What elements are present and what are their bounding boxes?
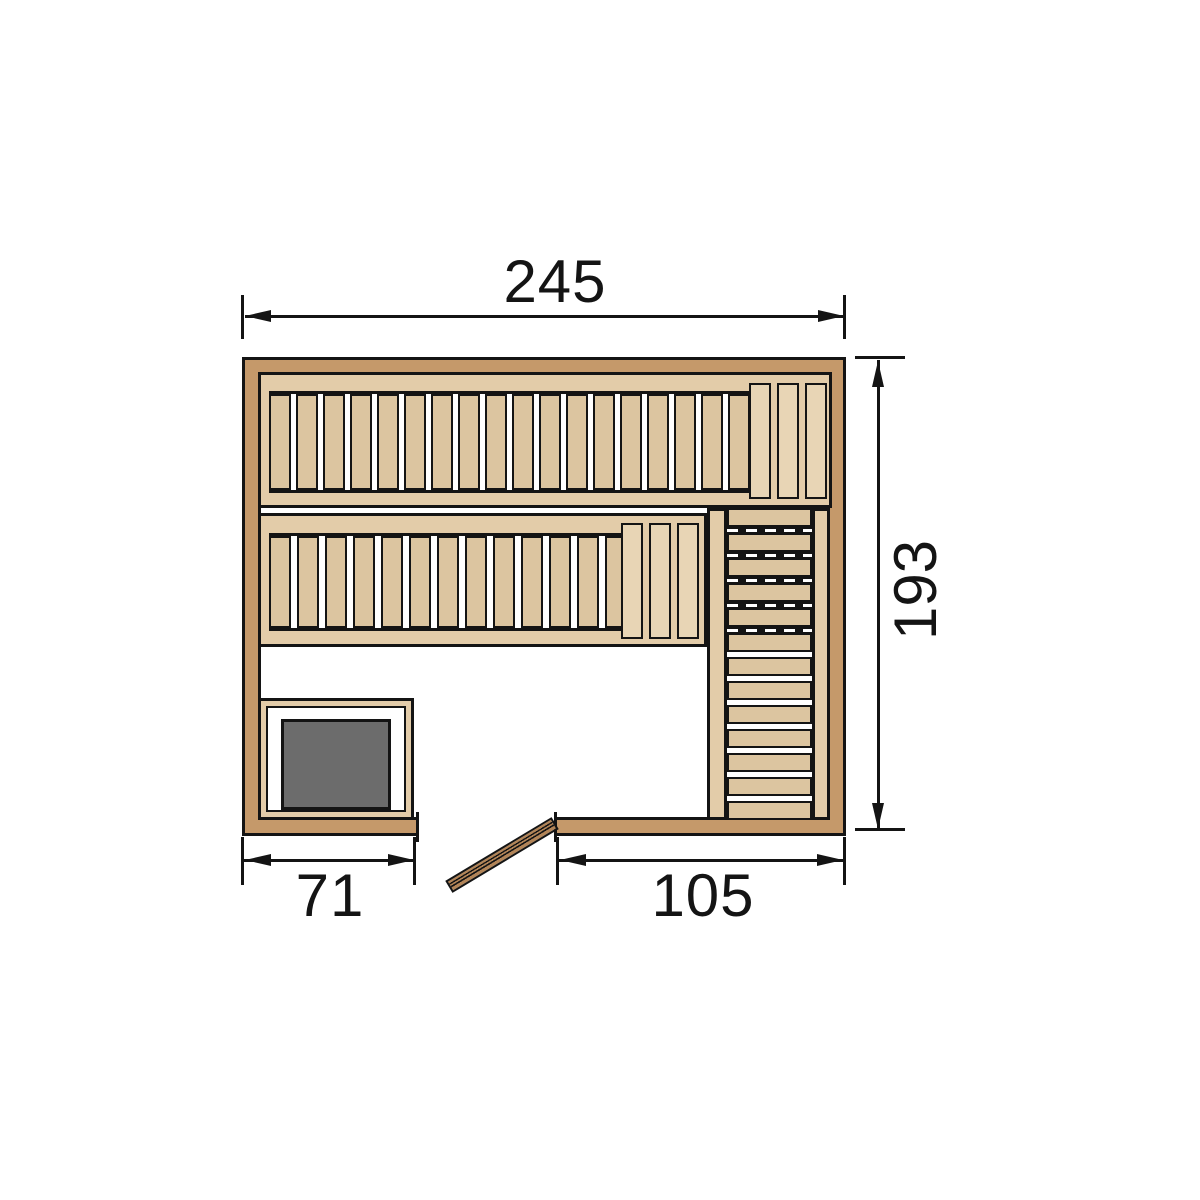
wood-slat (674, 394, 696, 490)
dim-depth-tick-top (855, 356, 905, 359)
heater-guard-inner (266, 706, 406, 812)
dim-right-arrow-right (817, 854, 843, 866)
upper-bench-slats (269, 391, 751, 493)
heater (281, 719, 391, 810)
wood-slat (350, 394, 372, 490)
wood-slat (381, 536, 403, 628)
wood-board (727, 657, 812, 676)
side-bench-left-rail (707, 508, 727, 820)
dim-label-right-section: 105 (593, 866, 813, 926)
dim-width-tick-left (241, 295, 244, 339)
wood-slat (566, 394, 588, 490)
wood-board (727, 705, 812, 724)
wood-slat (512, 394, 534, 490)
dim-left-arrow-left (245, 854, 271, 866)
side-bench (707, 508, 830, 820)
sauna-plan-page: { "title": "Sauna floor plan (top view)"… (0, 0, 1200, 1200)
dim-left-arrow-right (388, 854, 414, 866)
wood-slat (677, 523, 699, 639)
wood-board (727, 729, 812, 748)
wood-slat (377, 394, 399, 490)
dim-width-line (245, 315, 844, 318)
wood-slat (269, 394, 291, 490)
lower-bench (258, 513, 707, 647)
side-bench-right-rail (812, 508, 830, 820)
wood-slat (649, 523, 671, 639)
dim-depth-arrow-down (872, 803, 884, 829)
wood-board (727, 753, 812, 772)
wood-slat (549, 536, 571, 628)
dim-width-arrow-left (245, 310, 271, 322)
side-bench-boards (727, 508, 812, 820)
wood-board (727, 777, 812, 796)
wood-slat (805, 383, 827, 499)
dim-label-left-section: 71 (240, 866, 420, 926)
wood-slat (404, 394, 426, 490)
wood-slat (620, 394, 642, 490)
wood-board (727, 633, 812, 652)
wood-slat (539, 394, 561, 490)
wood-slat (728, 394, 750, 490)
wood-board (727, 801, 812, 820)
wood-slat (296, 394, 318, 490)
dim-right-arrow-left (560, 854, 586, 866)
wood-board (727, 681, 812, 700)
wood-slat (777, 383, 799, 499)
dim-label-overall-width: 245 (455, 252, 655, 312)
lower-bench-headrest (621, 523, 699, 639)
wood-board (727, 583, 812, 602)
dim-depth-line (877, 360, 880, 830)
upper-bench-headrest (749, 383, 827, 499)
wood-slat (593, 394, 615, 490)
wood-slat (269, 536, 291, 628)
wood-board (727, 608, 812, 627)
wood-slat (437, 536, 459, 628)
dim-width-arrow-right (818, 310, 844, 322)
wood-slat (577, 536, 599, 628)
wood-board (727, 533, 812, 552)
wood-slat (521, 536, 543, 628)
wood-slat (647, 394, 669, 490)
wood-slat (749, 383, 771, 499)
wood-slat (431, 394, 453, 490)
wood-board (727, 508, 812, 527)
wood-slat (465, 536, 487, 628)
wood-slat (458, 394, 480, 490)
wood-board (727, 558, 812, 577)
wood-slat (323, 394, 345, 490)
wood-slat (485, 394, 507, 490)
wood-slat (621, 523, 643, 639)
wood-slat (701, 394, 723, 490)
dim-depth-arrow-up (872, 361, 884, 387)
lower-bench-slats (269, 533, 627, 631)
heater-guard (258, 698, 414, 820)
wood-slat (297, 536, 319, 628)
dim-label-overall-depth: 193 (886, 540, 946, 640)
wood-slat (493, 536, 515, 628)
upper-bench (258, 372, 832, 508)
wood-slat (353, 536, 375, 628)
wood-slat (325, 536, 347, 628)
wood-slat (409, 536, 431, 628)
